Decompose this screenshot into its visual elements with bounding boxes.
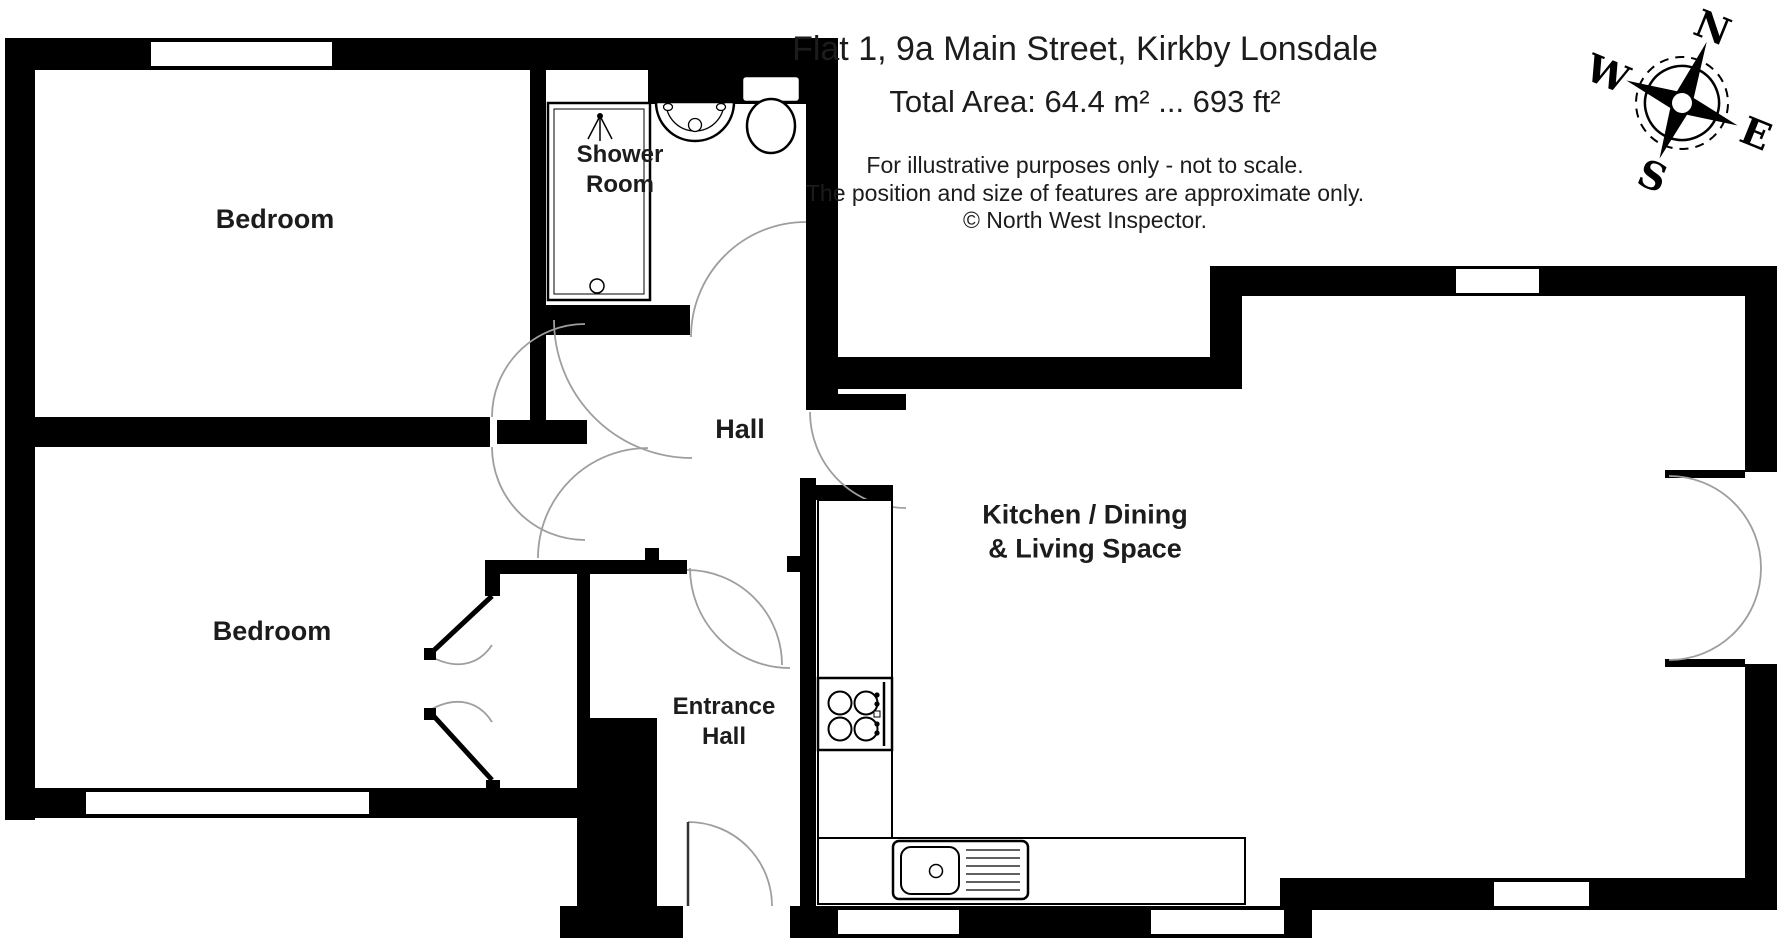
wall-bottom-lower-a bbox=[560, 906, 683, 938]
compass-e: E bbox=[1734, 107, 1778, 160]
window-bedroom2 bbox=[85, 791, 370, 815]
wall-bedroom2-top bbox=[485, 560, 687, 574]
window-kitchen-bottom-right bbox=[1493, 881, 1590, 907]
basin bbox=[652, 102, 738, 141]
label-shower-room-line2: Room bbox=[577, 170, 664, 200]
label-hall: Hall bbox=[715, 413, 765, 447]
window-kitchen-bottom-left2 bbox=[1150, 909, 1285, 935]
bifold-leaf-bottom bbox=[430, 712, 492, 780]
label-kitchen-line2: & Living Space bbox=[982, 532, 1188, 566]
hinge-cap-hall bbox=[645, 548, 659, 560]
hob-burner-3 bbox=[829, 718, 852, 741]
wall-closet-right bbox=[577, 573, 590, 907]
label-kitchen-line1: Kitchen / Dining bbox=[982, 498, 1188, 532]
door-arc-shower-inner bbox=[691, 222, 806, 337]
label-entrance-hall: Entrance Hall bbox=[673, 692, 776, 752]
total-area: Total Area: 64.4 m² ... 693 ft² bbox=[889, 84, 1280, 120]
bifold-leaf-top bbox=[430, 596, 492, 654]
bifold-hinge-1 bbox=[424, 648, 436, 660]
disclaimer-line1: For illustrative purposes only - not to … bbox=[866, 152, 1303, 179]
wall-right-upper bbox=[1745, 266, 1777, 472]
solid-block bbox=[590, 718, 657, 908]
compass-w: W bbox=[1578, 44, 1637, 103]
wall-hall-kitchen-stub bbox=[806, 394, 906, 410]
door-arc-entrance-hall-right bbox=[690, 568, 790, 668]
wall-kitchen-top-left bbox=[826, 357, 1242, 389]
label-shower-room-line1: Shower bbox=[577, 140, 664, 170]
window-bedroom1 bbox=[150, 41, 333, 67]
label-bedroom-1: Bedroom bbox=[216, 203, 335, 237]
shower-cubicle bbox=[548, 103, 650, 300]
compass-rose: N S E W bbox=[1549, 0, 1784, 232]
door-arc-french-top bbox=[1669, 476, 1761, 568]
copyright-line: © North West Inspector. bbox=[963, 207, 1207, 234]
compass-s: S bbox=[1631, 150, 1673, 202]
bifold-hinge-2 bbox=[424, 708, 436, 720]
label-entrance-hall-line1: Entrance bbox=[673, 692, 776, 722]
floorplan-drawing: N S E W bbox=[0, 0, 1784, 944]
door-arc-entrance bbox=[688, 822, 772, 906]
label-entrance-hall-line2: Hall bbox=[673, 722, 776, 752]
shower-drain bbox=[590, 279, 604, 293]
door-arc-french-bottom bbox=[1669, 568, 1761, 660]
floorplan: N S E W Flat 1, 9a Main Street, Kirkby L… bbox=[0, 0, 1784, 944]
door-leaf-bedroom1 bbox=[497, 420, 587, 444]
compass-n: N bbox=[1688, 0, 1737, 55]
door-arc-bedroom1-down bbox=[492, 447, 585, 540]
disclaimer-line2: The position and size of features are ap… bbox=[806, 180, 1364, 207]
hob-outline bbox=[818, 678, 892, 750]
basin-tap-right bbox=[717, 104, 726, 111]
door-arc-hall bbox=[538, 448, 648, 558]
wall-right-lower bbox=[1745, 664, 1777, 910]
window-kitchen-bottom-left1 bbox=[837, 909, 960, 935]
hob-burner-4 bbox=[855, 718, 878, 741]
wall-top bbox=[5, 38, 838, 70]
toilet bbox=[742, 76, 800, 153]
wall-bedroom-divider bbox=[5, 417, 490, 447]
kitchen-sink bbox=[893, 841, 1028, 899]
plan-title: Flat 1, 9a Main Street, Kirkby Lonsdale bbox=[792, 30, 1378, 69]
shower-tray-inner bbox=[554, 109, 644, 294]
hob-burner-1 bbox=[829, 692, 852, 715]
wall-kitchen-left-upper bbox=[806, 38, 838, 394]
basin-drain bbox=[689, 119, 702, 132]
label-kitchen: Kitchen / Dining & Living Space bbox=[982, 498, 1188, 566]
hob bbox=[818, 678, 892, 750]
hob-control-switch bbox=[874, 711, 880, 717]
closet-bifold-doors bbox=[424, 596, 500, 790]
wall-kitchen-left-lower bbox=[800, 478, 816, 908]
hinge-stub-entrance bbox=[787, 556, 803, 572]
sink-drain bbox=[930, 865, 943, 878]
bifold-hinge-3 bbox=[486, 780, 500, 790]
compass-letters: N S E W bbox=[1549, 0, 1784, 232]
counter-bottom bbox=[818, 838, 1245, 904]
label-shower-room: Shower Room bbox=[577, 140, 664, 200]
basin-tap-left bbox=[664, 104, 673, 111]
toilet-bowl bbox=[747, 99, 795, 153]
window-kitchen-top bbox=[1455, 268, 1540, 294]
wall-bedroom2-stub bbox=[485, 560, 500, 596]
wall-bedroom1-right bbox=[530, 70, 546, 420]
counter-vertical bbox=[818, 500, 892, 838]
label-bedroom-2: Bedroom bbox=[213, 615, 332, 649]
